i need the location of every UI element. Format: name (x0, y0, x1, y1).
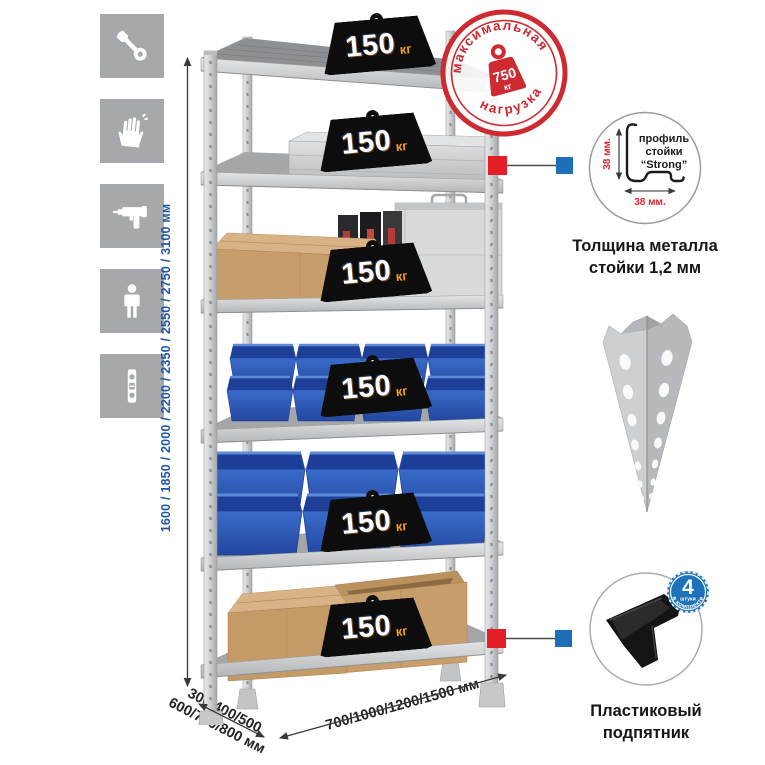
shelf-load-weight-1: 150кг (320, 8, 437, 76)
profile-dim-horizontal: 38 мм. (634, 197, 666, 208)
level-icon (100, 354, 164, 418)
plastic-foot-caption: Пластиковый подпятник (566, 701, 726, 745)
height-dimension-label: 1600 / 1850 / 2000 / 2200 / 2350 / 2550 … (159, 188, 183, 548)
profile-label-2: стойки (645, 146, 682, 158)
profile-dim-vertical: 38 мм. (602, 138, 613, 170)
wrench-icon (100, 14, 164, 78)
profile-label-3: “Strong” (641, 159, 687, 171)
shelving-rack-infographic: 1600 / 1850 / 2000 / 2200 / 2350 / 2550 … (0, 0, 765, 765)
included-count-badge: 4 штуки в комплекте (667, 571, 709, 613)
callout-blue-square (555, 630, 572, 647)
corner-post-image (595, 300, 700, 525)
profile-caption: Толщина металла стойки 1,2 мм (565, 236, 725, 280)
callout-blue-square (556, 157, 573, 174)
shelf-load-weight-6: 150кг (316, 590, 433, 658)
person-icon (100, 269, 164, 333)
shelf-load-weight-3: 150кг (316, 235, 433, 303)
drill-icon (100, 184, 164, 248)
plastic-foot-callout: 4 штуки в комплекте (586, 568, 726, 698)
max-load-stamp: максимальная нагрузка 750 кг (434, 3, 574, 143)
badge-unit: штуки (680, 597, 696, 603)
shelf-load-weight-2: 150кг (316, 105, 433, 173)
profile-cross-section-callout: 38 мм. профиль стойки “Strong” 38 мм. (583, 106, 707, 230)
gloves-icon (100, 99, 164, 163)
shelf-load-weight-4: 150кг (316, 350, 433, 418)
profile-label-1: профиль (639, 133, 689, 145)
shelf-load-weight-5: 150кг (316, 485, 433, 553)
